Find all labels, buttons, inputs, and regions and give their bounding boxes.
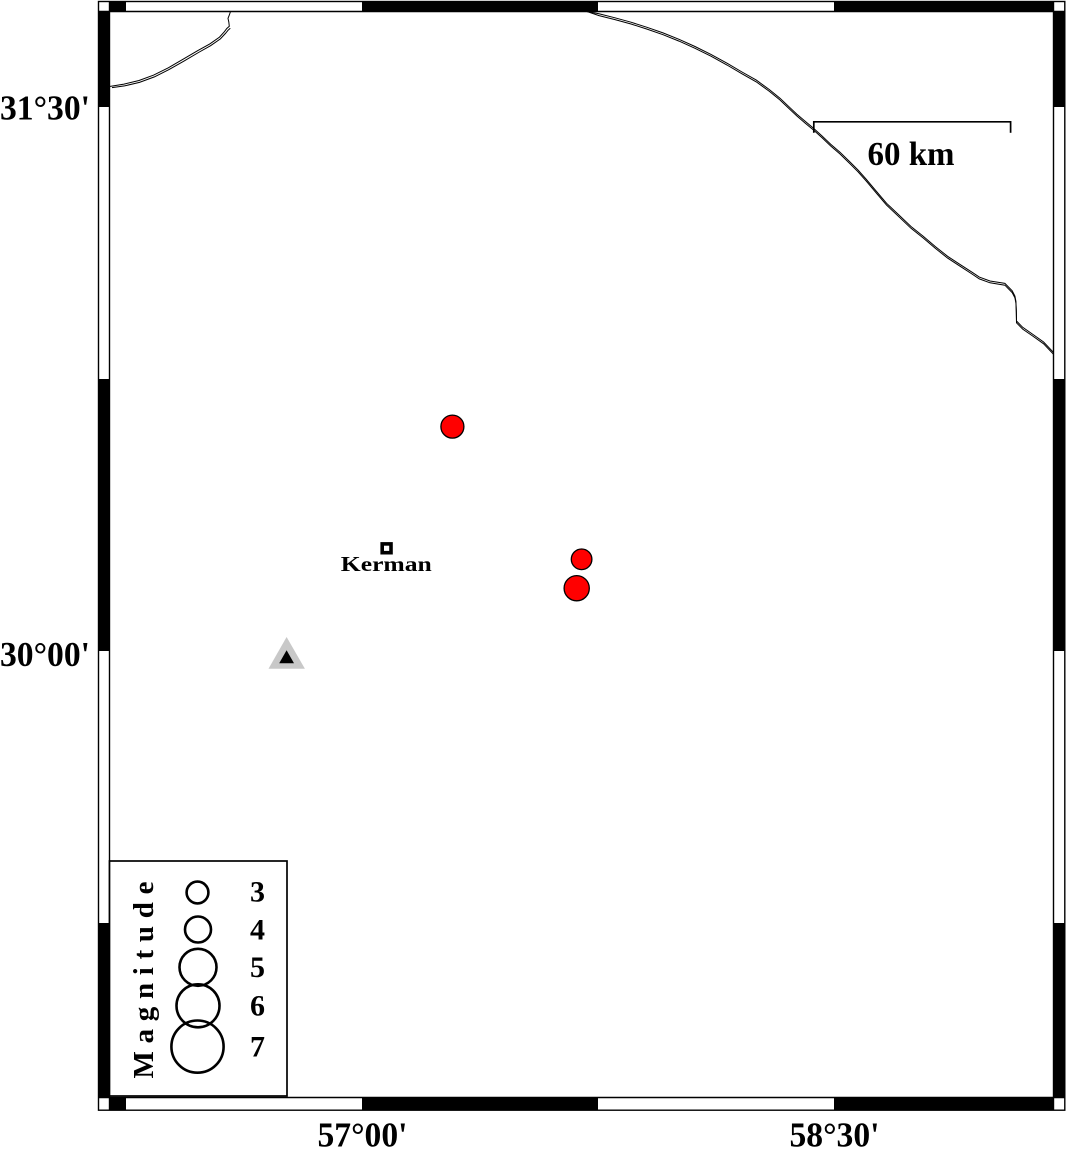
svg-text:58°30': 58°30' <box>790 1115 880 1148</box>
svg-text:57°00': 57°00' <box>318 1115 408 1148</box>
svg-text:60 km: 60 km <box>868 136 955 173</box>
svg-text:30°00': 30°00' <box>0 635 90 674</box>
svg-text:6: 6 <box>250 990 265 1023</box>
svg-text:3: 3 <box>250 876 265 909</box>
svg-text:31°30': 31°30' <box>0 88 90 127</box>
svg-text:Kerman: Kerman <box>341 552 432 576</box>
svg-text:4: 4 <box>250 913 265 946</box>
svg-text:7: 7 <box>250 1030 265 1063</box>
svg-text:5: 5 <box>250 951 265 984</box>
